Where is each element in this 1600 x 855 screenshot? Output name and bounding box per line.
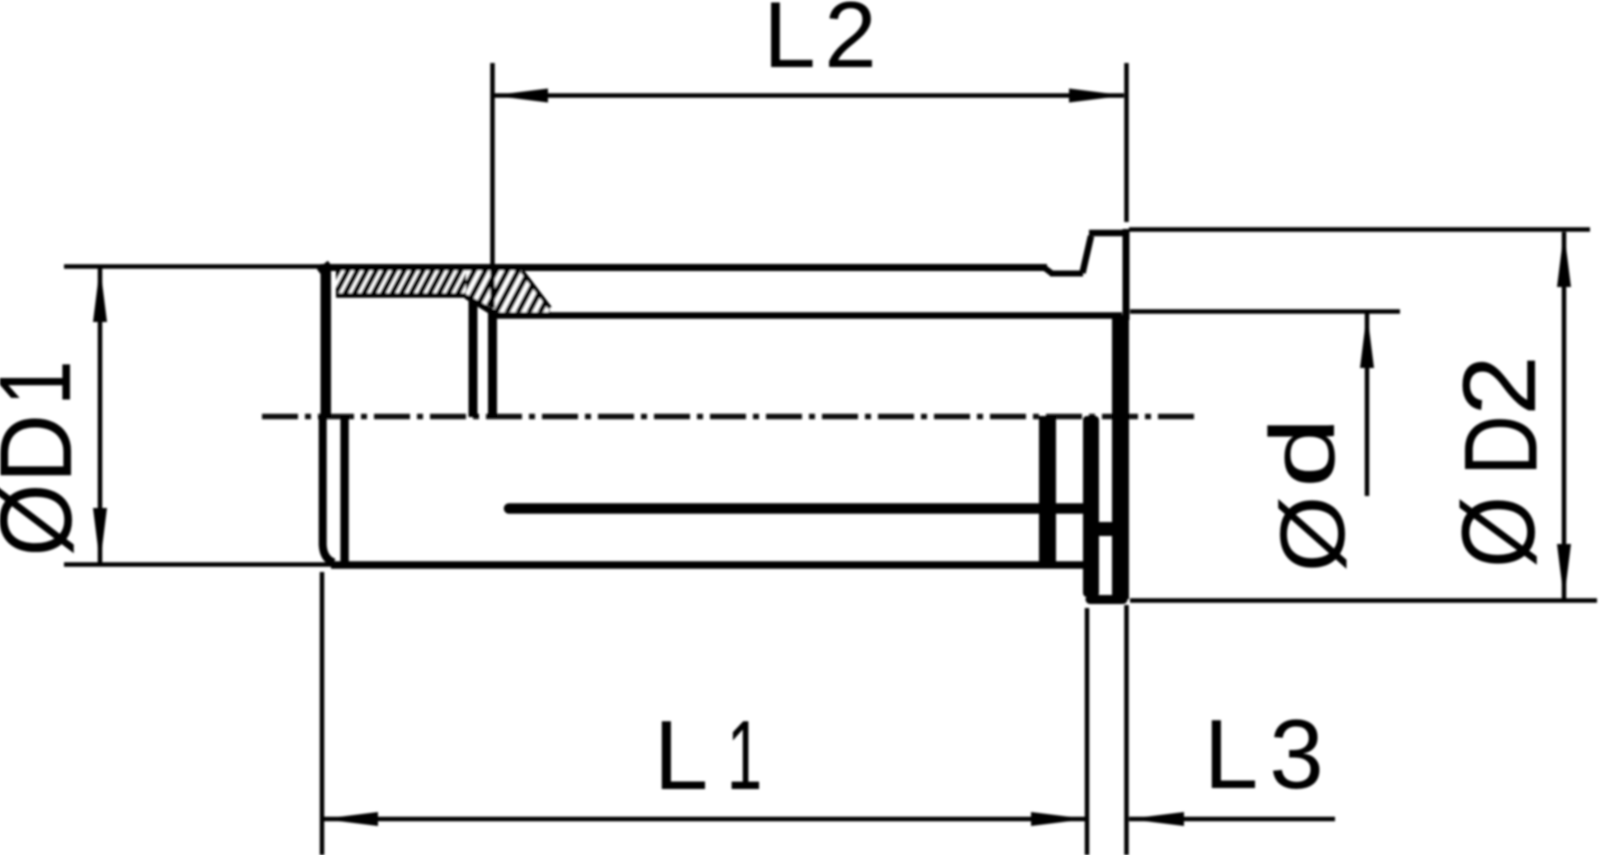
svg-text:2: 2 [824,0,876,87]
svg-text:1: 1 [727,700,762,810]
svg-text:D: D [1443,415,1559,476]
svg-text:1: 1 [0,360,92,405]
svg-text:D: D [0,414,93,483]
svg-text:L: L [1204,699,1259,809]
svg-text:Ø: Ø [1440,496,1556,568]
svg-text:L: L [654,700,709,810]
svg-text:2: 2 [1440,355,1557,416]
svg-text:3: 3 [1269,699,1324,809]
svg-text:d: d [1251,417,1354,489]
svg-text:Ø: Ø [1262,496,1364,573]
svg-text:L: L [763,0,815,87]
svg-text:Ø: Ø [0,484,93,557]
